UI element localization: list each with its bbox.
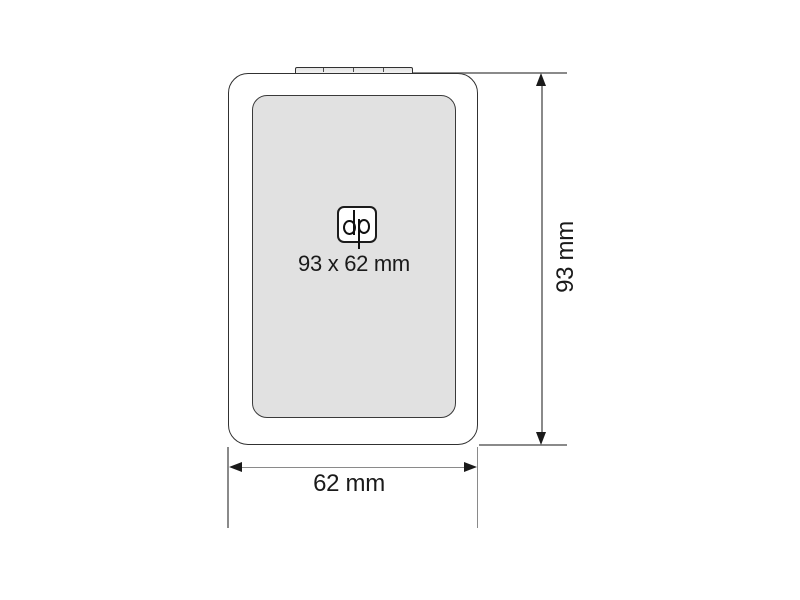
height-extension-line-bottom: [479, 444, 567, 445]
print-area-size-label: 93 x 62 mm: [298, 251, 410, 277]
tab-ridge-mark: [323, 68, 324, 72]
product-dimension-diagram: dp 93 x 62 mm 93 mm 62 mm: [0, 0, 800, 600]
width-extension-line-right: [477, 447, 478, 528]
arrow-right-icon: [464, 462, 477, 472]
tab-ridge-mark: [353, 68, 354, 72]
dp-logo-letter-d-bowl: [343, 220, 356, 235]
dp-logo-letter-p-bowl: [358, 219, 371, 234]
dp-logo: dp: [337, 206, 377, 243]
width-dimension-label: 62 mm: [313, 470, 385, 498]
width-dimension-line: [233, 467, 473, 468]
height-dimension-line: [541, 80, 542, 438]
arrow-left-icon: [229, 462, 242, 472]
arrow-up-icon: [536, 73, 546, 86]
height-dimension-label: 93 mm: [552, 221, 580, 293]
dp-logo-text: dp: [339, 208, 340, 209]
arrow-down-icon: [536, 432, 546, 445]
width-extension-line-left: [227, 447, 228, 528]
tab-ridge-mark: [383, 68, 384, 72]
